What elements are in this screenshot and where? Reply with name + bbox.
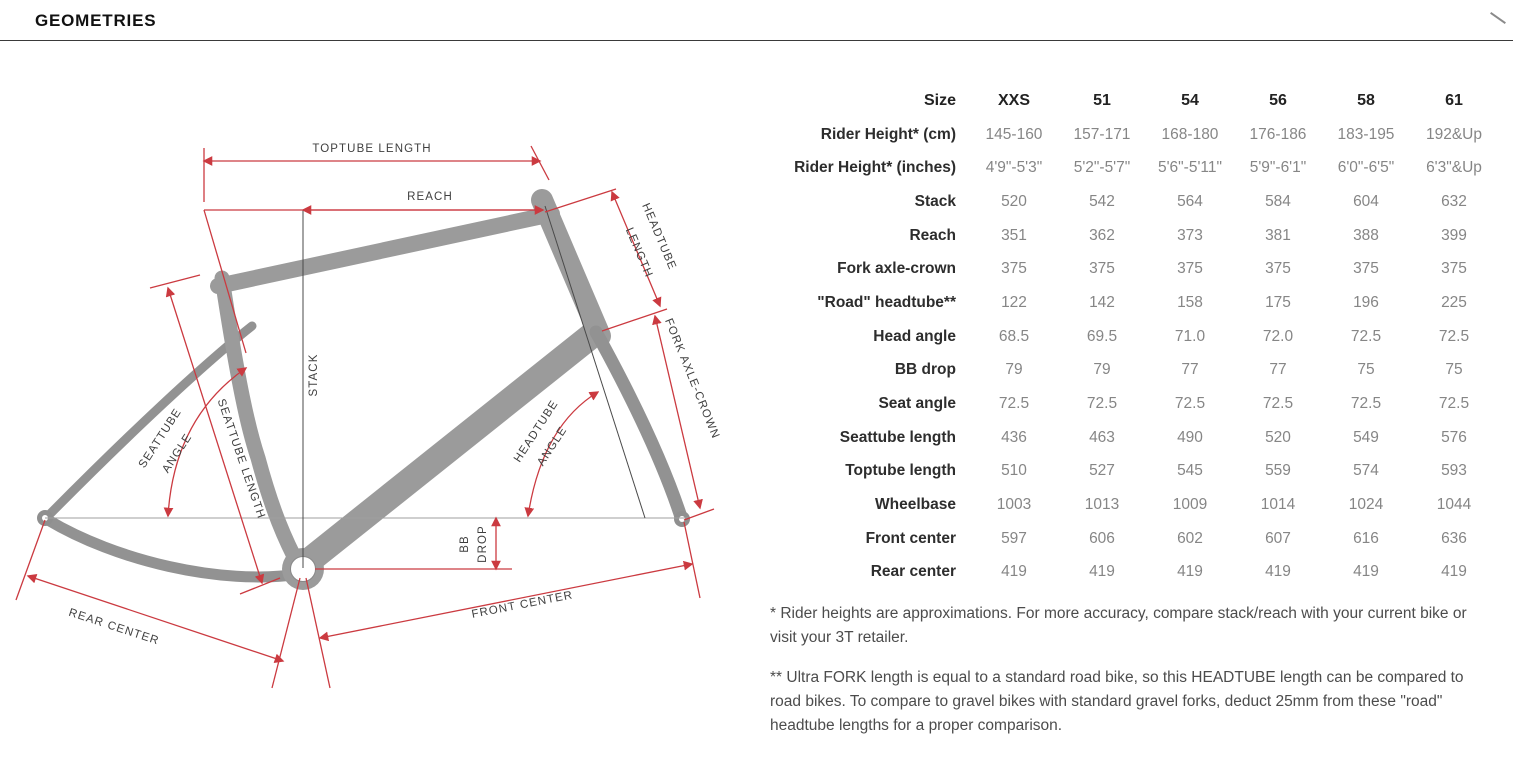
table-row: Rider Height* (cm)145-160157-171168-1801… (768, 118, 1508, 152)
cell-value: 68.5 (970, 328, 1058, 346)
table-row: Stack520542564584604632 (768, 185, 1508, 219)
cell-value: 72.5 (1058, 395, 1146, 413)
row-label: Stack (768, 193, 970, 211)
bike-frame (37, 200, 690, 590)
table-row: Seat angle72.572.572.572.572.572.5 (768, 387, 1508, 421)
row-label: Reach (768, 227, 970, 245)
row-label: Rider Height* (cm) (768, 126, 970, 144)
cell-value: 72.5 (970, 395, 1058, 413)
cell-value: 75 (1322, 361, 1410, 379)
cell-value: 79 (1058, 361, 1146, 379)
cell-value: 183-195 (1322, 126, 1410, 144)
geometry-table: Size XXS 51 54 56 58 61 Rider Height* (c… (768, 84, 1508, 589)
cell-value: 542 (1058, 193, 1146, 211)
cell-value: 375 (970, 260, 1058, 278)
row-label: Rider Height* (inches) (768, 159, 970, 177)
cell-value: 375 (1146, 260, 1234, 278)
size-column-header: 56 (1234, 92, 1322, 110)
cell-value: 616 (1322, 530, 1410, 548)
table-row: Seattube length436463490520549576 (768, 421, 1508, 455)
cell-value: 419 (1058, 563, 1146, 581)
size-column-header: XXS (970, 92, 1058, 110)
table-row: Head angle68.569.571.072.072.572.5 (768, 320, 1508, 354)
cell-value: 607 (1234, 530, 1322, 548)
size-header-label: Size (768, 92, 970, 110)
cell-value: 606 (1058, 530, 1146, 548)
cell-value: 145-160 (970, 126, 1058, 144)
cell-value: 5'6"-5'11" (1146, 159, 1234, 177)
cell-value: 375 (1322, 260, 1410, 278)
cell-value: 463 (1058, 429, 1146, 447)
cell-value: 175 (1234, 294, 1322, 312)
row-label: Seattube length (768, 429, 970, 447)
cell-value: 72.0 (1234, 328, 1322, 346)
label-headtube-length-2: LENGTH (623, 226, 655, 280)
table-row: Front center597606602607616636 (768, 522, 1508, 556)
size-column-header: 51 (1058, 92, 1146, 110)
cell-value: 419 (1146, 563, 1234, 581)
cell-value: 419 (1234, 563, 1322, 581)
label-stack: STACK (308, 354, 320, 397)
cell-value: 4'9"-5'3" (970, 159, 1058, 177)
cell-value: 604 (1322, 193, 1410, 211)
cell-value: 375 (1410, 260, 1498, 278)
bike-frame-diagram: TOPTUBE LENGTH REACH HEADTUBE LENGTH STA… (0, 128, 765, 733)
label-fork-axle-crown: FORK AXLE-CROWN (662, 317, 721, 441)
dimension-lines (16, 146, 714, 688)
cell-value: 436 (970, 429, 1058, 447)
cell-value: 196 (1322, 294, 1410, 312)
table-row: BB drop797977777575 (768, 354, 1508, 388)
cell-value: 72.5 (1322, 395, 1410, 413)
cell-value: 1009 (1146, 496, 1234, 514)
row-label: Rear center (768, 563, 970, 581)
section-header: GEOMETRIES (0, 0, 1513, 41)
cell-value: 142 (1058, 294, 1146, 312)
size-column-header: 54 (1146, 92, 1234, 110)
cell-value: 71.0 (1146, 328, 1234, 346)
cell-value: 419 (970, 563, 1058, 581)
row-label: Fork axle-crown (768, 260, 970, 278)
footnote-fork-length: ** Ultra FORK length is equal to a stand… (770, 666, 1470, 738)
cell-value: 1044 (1410, 496, 1498, 514)
table-row: "Road" headtube**122142158175196225 (768, 286, 1508, 320)
label-front-center: FRONT CENTER (471, 589, 574, 620)
cell-value: 79 (970, 361, 1058, 379)
cell-value: 351 (970, 227, 1058, 245)
cell-value: 75 (1410, 361, 1498, 379)
cell-value: 72.5 (1410, 395, 1498, 413)
row-label: Toptube length (768, 462, 970, 480)
cell-value: 545 (1146, 462, 1234, 480)
cell-value: 69.5 (1058, 328, 1146, 346)
cell-value: 77 (1146, 361, 1234, 379)
label-bb-drop-2: DROP (477, 525, 489, 563)
cell-value: 576 (1410, 429, 1498, 447)
cell-value: 77 (1234, 361, 1322, 379)
page-title: GEOMETRIES (35, 11, 156, 31)
size-column-header: 58 (1322, 92, 1410, 110)
table-header-row: Size XXS 51 54 56 58 61 (768, 84, 1508, 118)
cell-value: 5'9"-6'1" (1234, 159, 1322, 177)
cell-value: 559 (1234, 462, 1322, 480)
cell-value: 602 (1146, 530, 1234, 548)
cell-value: 419 (1322, 563, 1410, 581)
cell-value: 564 (1146, 193, 1234, 211)
cell-value: 72.5 (1322, 328, 1410, 346)
geometry-diagram: TOPTUBE LENGTH REACH HEADTUBE LENGTH STA… (0, 128, 765, 733)
label-rear-center: REAR CENTER (67, 607, 161, 648)
cell-value: 520 (970, 193, 1058, 211)
cell-value: 157-171 (1058, 126, 1146, 144)
cell-value: 593 (1410, 462, 1498, 480)
table-row: Rider Height* (inches)4'9"-5'3"5'2"-5'7"… (768, 151, 1508, 185)
row-label: BB drop (768, 361, 970, 379)
label-toptube-length: TOPTUBE LENGTH (312, 143, 431, 155)
cell-value: 375 (1058, 260, 1146, 278)
cell-value: 168-180 (1146, 126, 1234, 144)
cell-value: 158 (1146, 294, 1234, 312)
cell-value: 381 (1234, 227, 1322, 245)
row-label: "Road" headtube** (768, 294, 970, 312)
cell-value: 1024 (1322, 496, 1410, 514)
cell-value: 510 (970, 462, 1058, 480)
cell-value: 6'3"&Up (1410, 159, 1498, 177)
chevron-toggle-icon[interactable] (1490, 12, 1506, 24)
cell-value: 192&Up (1410, 126, 1498, 144)
cell-value: 373 (1146, 227, 1234, 245)
cell-value: 520 (1234, 429, 1322, 447)
table-row: Wheelbase100310131009101410241044 (768, 488, 1508, 522)
cell-value: 72.5 (1410, 328, 1498, 346)
cell-value: 72.5 (1234, 395, 1322, 413)
cell-value: 388 (1322, 227, 1410, 245)
footnote-rider-heights: * Rider heights are approximations. For … (770, 602, 1470, 650)
row-label: Wheelbase (768, 496, 970, 514)
cell-value: 419 (1410, 563, 1498, 581)
cell-value: 636 (1410, 530, 1498, 548)
cell-value: 375 (1234, 260, 1322, 278)
cell-value: 399 (1410, 227, 1498, 245)
cell-value: 1003 (970, 496, 1058, 514)
cell-value: 597 (970, 530, 1058, 548)
table-row: Reach351362373381388399 (768, 219, 1508, 253)
cell-value: 549 (1322, 429, 1410, 447)
cell-value: 72.5 (1146, 395, 1234, 413)
row-label: Seat angle (768, 395, 970, 413)
cell-value: 122 (970, 294, 1058, 312)
table-row: Toptube length510527545559574593 (768, 455, 1508, 489)
cell-value: 225 (1410, 294, 1498, 312)
table-row: Rear center419419419419419419 (768, 556, 1508, 590)
cell-value: 362 (1058, 227, 1146, 245)
cell-value: 584 (1234, 193, 1322, 211)
row-label: Front center (768, 530, 970, 548)
cell-value: 5'2"-5'7" (1058, 159, 1146, 177)
cell-value: 527 (1058, 462, 1146, 480)
cell-value: 574 (1322, 462, 1410, 480)
row-label: Head angle (768, 328, 970, 346)
cell-value: 176-186 (1234, 126, 1322, 144)
cell-value: 490 (1146, 429, 1234, 447)
cell-value: 632 (1410, 193, 1498, 211)
cell-value: 6'0"-6'5" (1322, 159, 1410, 177)
label-reach: REACH (407, 191, 453, 203)
label-bb-drop-1: BB (459, 535, 471, 553)
cell-value: 1013 (1058, 496, 1146, 514)
footnotes: * Rider heights are approximations. For … (770, 602, 1470, 754)
cell-value: 1014 (1234, 496, 1322, 514)
size-column-header: 61 (1410, 92, 1498, 110)
table-row: Fork axle-crown375375375375375375 (768, 252, 1508, 286)
